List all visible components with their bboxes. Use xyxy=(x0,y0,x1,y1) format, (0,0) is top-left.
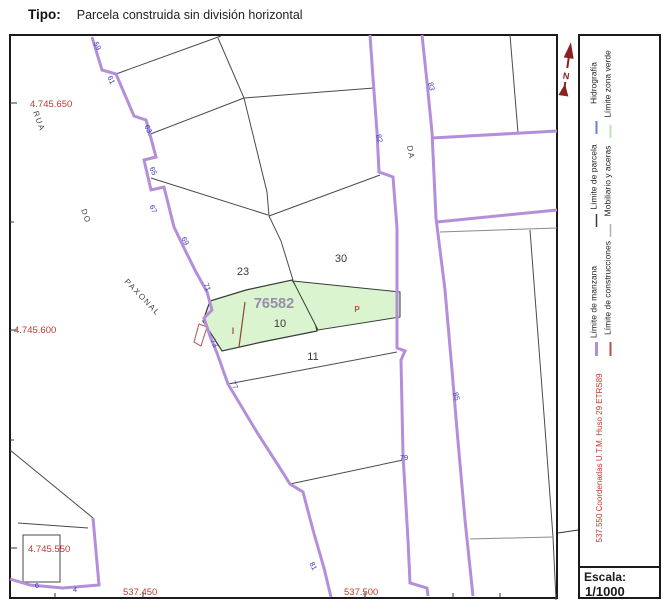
legend-limite-construcciones: Límite de construcciones xyxy=(603,241,613,335)
cadastral-map-canvas: 59 61 63 65 67 69 71 73 77 79 81 82 83 8… xyxy=(0,0,663,609)
legend-limite-parcela: Límite de parcela xyxy=(589,144,599,209)
scale-box: Escala: 1/1000 xyxy=(584,570,626,599)
portal-6: 6 xyxy=(35,581,39,590)
portal-4: 4 xyxy=(73,585,77,594)
north-arrow-shaft-top xyxy=(567,58,568,68)
coord-537450: 537.450 xyxy=(123,587,157,598)
north-arrow: N xyxy=(558,42,575,97)
coord-4745600: 4.745.600 xyxy=(14,325,56,336)
tick-right-550 xyxy=(558,530,578,533)
parcel-30-label: 30 xyxy=(335,253,347,265)
legend-coordinate-note: 537.550 Coordenadas U.T.M. Huso 29 ETRS8… xyxy=(595,373,604,543)
scale-value: 1/1000 xyxy=(585,584,625,599)
parcel-10-label: 10 xyxy=(274,318,286,330)
legend-zona-verde: Límite zona verde xyxy=(603,50,613,118)
parcel-reference-label: 76582 xyxy=(254,296,294,312)
north-label: N xyxy=(562,71,570,82)
parcel-11-label: 11 xyxy=(307,351,318,363)
parcel-23-label: 23 xyxy=(237,266,249,278)
construction-mark-p: P xyxy=(354,305,360,314)
coord-4745650: 4.745.650 xyxy=(30,99,72,110)
legend-hidrografia: Hidrografía xyxy=(589,62,599,104)
coord-4745550: 4.745.550 xyxy=(28,544,70,555)
legend-limite-manzana: Límite de manzana xyxy=(589,266,599,339)
cadastral-viewer: Tipo:Parcela construida sin división hor… xyxy=(0,0,663,609)
scale-label: Escala: xyxy=(584,570,626,584)
portal-79: 79 xyxy=(400,453,408,462)
construction-mark-i: I xyxy=(232,326,235,336)
coord-537500: 537.500 xyxy=(344,587,378,598)
north-arrow-tip xyxy=(564,42,576,59)
legend-mobiliario: Mobiliario y aceras xyxy=(603,146,613,217)
